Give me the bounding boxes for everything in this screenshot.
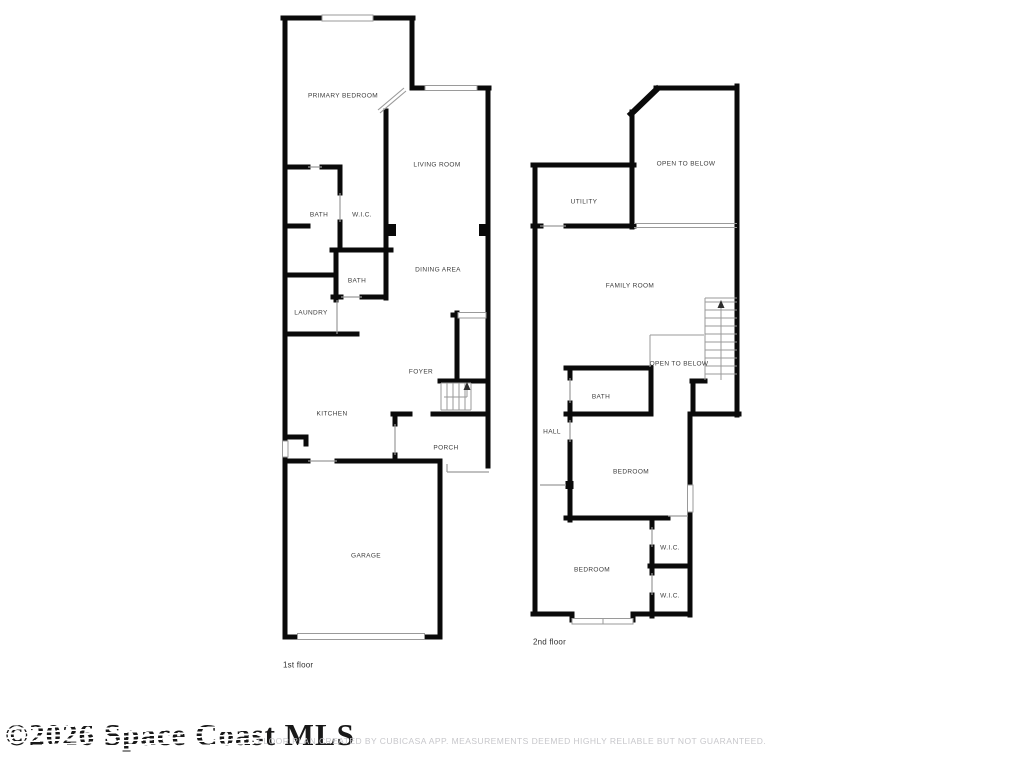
open-to-below-railing	[634, 224, 737, 368]
caption-first-floor: 1st floor	[283, 661, 313, 670]
room-label-wic-1f: W.I.C.	[352, 212, 372, 219]
room-label-utility: UTILITY	[571, 199, 598, 206]
room-label-foyer: FOYER	[409, 369, 433, 376]
floor-plan-page: PRIMARY BEDROOM LIVING ROOM BATH W.I.C. …	[0, 0, 1024, 768]
first-floor-plan	[283, 15, 490, 640]
room-label-bedroom-2: BEDROOM	[574, 567, 610, 574]
room-label-wic-2f-1: W.I.C.	[660, 545, 680, 552]
windows-second-floor	[572, 485, 693, 624]
room-label-open-to-below-2: OPEN TO BELOW	[650, 361, 709, 368]
wall-pier	[479, 224, 488, 236]
stair-up-arrow	[718, 300, 725, 308]
mls-watermark: ©2026 Space Coast MLS	[5, 717, 355, 753]
room-label-living-room: LIVING ROOM	[413, 162, 460, 169]
room-label-family-room: FAMILY ROOM	[606, 283, 654, 290]
room-label-primary-bedroom: PRIMARY BEDROOM	[308, 93, 378, 100]
room-label-hall: HALL	[543, 429, 561, 436]
room-label-open-to-below-1: OPEN TO BELOW	[657, 161, 716, 168]
room-label-bedroom-1: BEDROOM	[613, 469, 649, 476]
stairs-second-floor	[705, 298, 737, 380]
room-label-bath-1: BATH	[310, 212, 328, 219]
wall-stub	[566, 481, 574, 489]
room-label-wic-2f-2: W.I.C.	[660, 593, 680, 600]
room-label-laundry: LAUNDRY	[294, 310, 327, 317]
footer-disclaimer: FLOOR PLAN CREATED BY CUBICASA APP. MEAS…	[0, 736, 1024, 746]
caption-second-floor: 2nd floor	[533, 638, 566, 647]
floor-plan-canvas	[0, 0, 1024, 768]
room-label-porch: PORCH	[433, 445, 458, 452]
walls-first-floor	[283, 18, 489, 637]
room-label-bath-2: BATH	[348, 278, 366, 285]
chamfer-wall	[631, 89, 657, 114]
doors-second-floor	[540, 226, 688, 595]
wall-pier	[386, 224, 396, 236]
entry-door-swing	[378, 88, 406, 113]
porch-edge	[447, 464, 489, 472]
room-label-bath-2f: BATH	[592, 394, 610, 401]
room-label-garage: GARAGE	[351, 553, 381, 560]
room-label-kitchen: KITCHEN	[317, 411, 348, 418]
room-label-dining-area: DINING AREA	[415, 267, 461, 274]
